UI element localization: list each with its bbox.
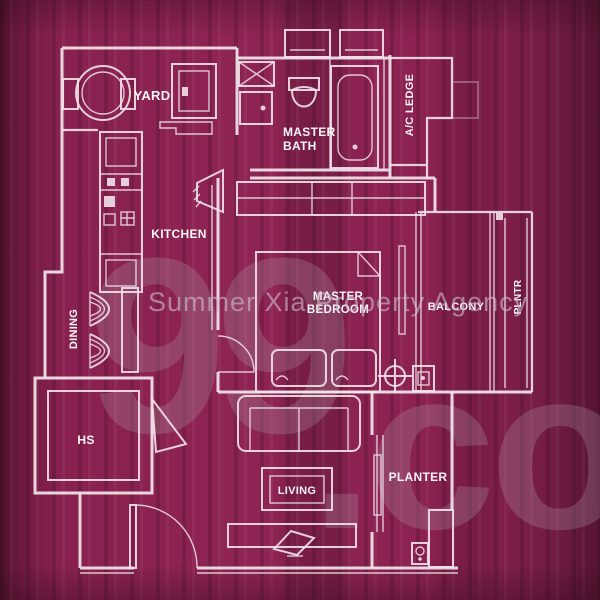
bath-cabinet: [240, 92, 272, 124]
bath-window: [285, 30, 330, 57]
tv-icon: [274, 531, 314, 555]
fridge-icon: [106, 138, 136, 166]
floor-plan-image: 99 .co: [0, 0, 600, 600]
agency-watermark: Summer Xia Property Agency: [148, 287, 528, 317]
brand-watermark-co: .co: [310, 320, 600, 577]
stove-icon: [104, 196, 115, 207]
toilet-icon: [289, 78, 319, 107]
bath-window: [340, 30, 383, 57]
living-label: LIVING: [278, 485, 316, 497]
yard-label: YARD: [134, 88, 171, 103]
planter-label: PLANTER: [389, 470, 448, 484]
kitchen-label: KITCHEN: [151, 227, 206, 241]
hs-label: HS: [77, 433, 94, 447]
master-bath-label-line2: BATH: [283, 139, 317, 153]
strip-marker: [496, 213, 503, 220]
dining-label: DINING: [68, 309, 80, 349]
master-bath-label-line1: MASTER: [283, 125, 335, 139]
floor-plan-svg: 99 .co: [0, 0, 600, 600]
entrance-door: [130, 505, 197, 568]
yard-shelf: [160, 122, 212, 134]
bathtub-icon: [331, 66, 378, 168]
ac-ledge-label: A/C LEDGE: [404, 74, 416, 137]
